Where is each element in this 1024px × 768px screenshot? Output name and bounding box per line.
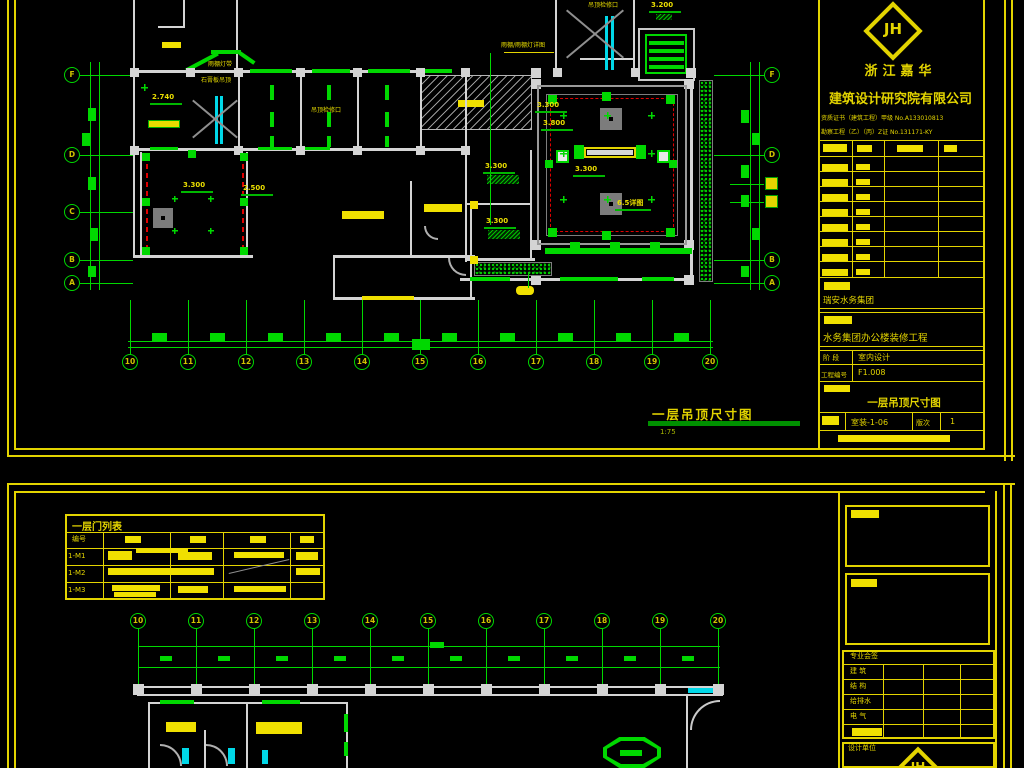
- label-block: [838, 435, 950, 442]
- grid-line: [741, 195, 749, 207]
- grid-line: [649, 49, 684, 53]
- label-block: [470, 201, 478, 209]
- grid-line: [312, 629, 313, 686]
- grid-line: [326, 333, 341, 341]
- grid-line: [714, 155, 764, 156]
- grid-line: [188, 300, 189, 355]
- axis-bubble: 12: [238, 354, 254, 370]
- door-arc: [160, 744, 182, 766]
- grid-line: [602, 629, 603, 686]
- grid-line: [430, 642, 444, 648]
- axis-bubble: 19: [652, 613, 668, 629]
- border-line: [983, 0, 985, 449]
- label-block: [296, 552, 318, 560]
- grid-line: [718, 629, 719, 686]
- annotation-label: 3.300: [537, 102, 559, 110]
- grid-line: [649, 57, 684, 61]
- grid-line: [649, 65, 684, 69]
- cross-mark: [560, 150, 567, 157]
- grid-line: [558, 333, 573, 341]
- grid-line: [385, 136, 389, 147]
- border-line: [818, 430, 983, 431]
- annotation-label: 吊顶检修口: [311, 108, 341, 115]
- label-block: [856, 254, 870, 260]
- axis-bubble: 18: [586, 354, 602, 370]
- border-line: [912, 412, 913, 430]
- grid-line: [470, 277, 510, 281]
- label-block: [822, 269, 848, 276]
- cross-mark: [560, 112, 567, 119]
- drawing-number: 室装-1-06: [851, 417, 888, 428]
- label-block: [178, 586, 208, 593]
- grid-line: [710, 300, 711, 355]
- grid-line: [428, 629, 429, 686]
- wall-segment: [597, 684, 608, 695]
- grid-line: [385, 112, 389, 127]
- border-line: [14, 0, 16, 449]
- wall-segment: [296, 146, 305, 155]
- grid-line: [80, 212, 133, 213]
- axis-square: [765, 195, 778, 208]
- grid-line: [304, 300, 305, 355]
- stage-value: 室内设计: [858, 352, 890, 363]
- wall-segment: [587, 150, 633, 155]
- border-line: [842, 709, 995, 710]
- axis-bubble: 18: [594, 613, 610, 629]
- grid-line: [560, 277, 618, 281]
- border-line: [14, 448, 985, 450]
- annotation-label: 雨棚/雨棚灯详图: [501, 43, 545, 50]
- grid-line: [674, 333, 689, 341]
- grid-line: [478, 300, 479, 355]
- wall-segment: [238, 72, 240, 150]
- cross-mark: [648, 196, 655, 203]
- grid-line: [138, 646, 720, 647]
- label-block: [234, 586, 286, 592]
- wall-segment: [410, 181, 412, 257]
- grid-line: [385, 85, 389, 100]
- annotation-label: 2.740: [152, 94, 174, 102]
- border-line: [65, 565, 325, 566]
- annotation-label: 1-M2: [68, 570, 85, 578]
- cyan-door: [220, 96, 223, 144]
- grid-line: [624, 656, 636, 661]
- label-block: [300, 536, 314, 543]
- cross-mark: [172, 196, 178, 202]
- wall-segment: [296, 68, 305, 77]
- wall-segment: [416, 68, 425, 77]
- grid-line: [616, 333, 631, 341]
- speckle-band: [474, 262, 552, 276]
- grid-line: [188, 150, 196, 158]
- label-block: [296, 568, 320, 575]
- border-line: [938, 140, 939, 277]
- grid-line: [218, 656, 230, 661]
- grid-line: [370, 629, 371, 686]
- grid-line: [500, 333, 515, 341]
- company-name-line2: 建筑设计研究院有限公司: [818, 88, 983, 107]
- annotation-label: 2.500: [243, 185, 265, 193]
- label-block: [178, 552, 212, 560]
- wall-segment: [133, 684, 144, 695]
- wall-segment: [481, 684, 492, 695]
- border-line: [818, 308, 983, 309]
- certificate-line1: 资质证书（建筑工程）甲级 No.A133010813: [821, 113, 943, 122]
- grid-line: [160, 656, 172, 661]
- wall-segment: [357, 72, 359, 150]
- wall-segment: [686, 68, 696, 78]
- border-line: [818, 186, 983, 187]
- label-block: [458, 100, 484, 107]
- company-name-line1: 浙江嘉华: [818, 60, 983, 79]
- label-block: [851, 510, 879, 518]
- label-block: [470, 256, 478, 264]
- label-block: [162, 42, 181, 48]
- border-line: [818, 277, 983, 278]
- grid-line: [508, 656, 520, 661]
- wall-segment: [191, 684, 202, 695]
- company-logo-text: JH: [872, 20, 914, 38]
- wall-segment: [133, 0, 135, 258]
- border-line: [884, 140, 885, 277]
- axis-bubble: D: [764, 147, 780, 163]
- border-line: [940, 412, 941, 430]
- axis-bubble: 17: [528, 354, 544, 370]
- wall-segment: [531, 68, 541, 78]
- axis-bubble: 10: [130, 613, 146, 629]
- axis-bubble: 13: [304, 613, 320, 629]
- grid-line: [254, 629, 255, 686]
- border-line: [818, 412, 983, 413]
- annotation-label: 3.300: [183, 182, 205, 190]
- border-line: [65, 532, 325, 533]
- axis-bubble: 17: [536, 613, 552, 629]
- door-arc: [448, 258, 466, 276]
- label-block: [856, 179, 870, 185]
- axis-bubble: 12: [246, 613, 262, 629]
- axis-bubble: D: [64, 147, 80, 163]
- axis-bubble: F: [764, 67, 780, 83]
- grid-line: [752, 228, 760, 240]
- grid-line: [152, 333, 167, 341]
- label-block: [822, 194, 848, 201]
- axis-bubble: 15: [412, 354, 428, 370]
- label-block: [822, 179, 848, 186]
- grid-line: [88, 266, 96, 277]
- project-name: 水务集团办公楼装修工程: [823, 330, 928, 344]
- border-line: [818, 231, 983, 232]
- grid-line: [90, 62, 91, 290]
- label-block: [944, 145, 957, 152]
- label-block: [342, 211, 384, 219]
- border-line: [818, 246, 983, 247]
- wall-segment: [236, 0, 238, 70]
- border-line: [818, 381, 983, 382]
- grid-line: [88, 177, 96, 190]
- grid-line: [752, 133, 760, 145]
- wall-segment: [461, 146, 470, 155]
- plan-scale: 1:75: [660, 428, 676, 436]
- cross-mark: [141, 84, 148, 91]
- label-block: [822, 164, 848, 171]
- label-block: [516, 286, 534, 295]
- wall-segment: [531, 275, 541, 285]
- grid-line: [160, 700, 194, 704]
- border-line: [818, 171, 983, 172]
- axis-bubble: 20: [710, 613, 726, 629]
- label-block: [250, 536, 266, 543]
- axis-bubble: 16: [470, 354, 486, 370]
- annotation-label: 给排水: [850, 698, 871, 706]
- wall-segment: [186, 68, 195, 77]
- wall-segment: [539, 684, 550, 695]
- wall-segment: [465, 72, 467, 262]
- axis-bubble: 16: [478, 613, 494, 629]
- wall-segment: [631, 68, 640, 77]
- grid-line: [545, 248, 692, 254]
- cross-mark: [648, 150, 655, 157]
- wall-segment: [555, 0, 557, 71]
- border-line: [7, 483, 9, 768]
- grid-line: [741, 266, 749, 277]
- wall-segment: [307, 684, 318, 695]
- grid-line: [442, 333, 457, 341]
- axis-bubble: 15: [420, 613, 436, 629]
- grid-line: [344, 742, 348, 756]
- wall-segment: [183, 0, 185, 28]
- axis-bubble: 11: [188, 613, 204, 629]
- annotation-label: 编号: [72, 536, 86, 544]
- grid-line: [90, 228, 98, 241]
- plan-title-underline: [648, 421, 800, 426]
- wall-segment: [420, 72, 422, 150]
- label-block: [852, 728, 882, 736]
- grid-line: [99, 62, 100, 290]
- wall-segment: [333, 257, 335, 299]
- border-line: [842, 724, 995, 725]
- client-name: 瑞安水务集团: [823, 294, 874, 306]
- border-line: [103, 532, 104, 600]
- wall-segment: [713, 684, 724, 695]
- border-line: [170, 532, 171, 600]
- cad-drawing-canvas: JH 浙江嘉华 建筑设计研究院有限公司 资质证书（建筑工程）甲级 No.A133…: [0, 0, 1024, 768]
- fixture-dot: [161, 216, 165, 220]
- grid-line: [574, 145, 584, 159]
- wall-segment: [130, 68, 139, 77]
- project-no-value: F1.008: [858, 368, 886, 377]
- grid-line: [392, 656, 404, 661]
- wall-segment: [246, 702, 248, 768]
- stage-label: 阶 段: [823, 353, 839, 363]
- grid-line: [142, 198, 150, 206]
- label-block: [362, 296, 414, 300]
- grid-line: [660, 629, 661, 686]
- grid-line: [270, 85, 274, 100]
- axis-bubble: 14: [354, 354, 370, 370]
- cross-mark: [560, 196, 567, 203]
- border-line: [960, 664, 961, 739]
- border-line: [852, 140, 853, 277]
- border-line: [845, 412, 846, 430]
- wall-segment: [633, 0, 635, 71]
- border-line: [14, 491, 16, 768]
- wall-segment: [423, 684, 434, 695]
- cyan-door: [611, 16, 614, 70]
- grid-line: [276, 656, 288, 661]
- grid-line: [741, 110, 749, 123]
- border-line: [7, 0, 9, 456]
- grid-line: [142, 153, 150, 161]
- border-line: [223, 532, 224, 600]
- border-line: [995, 491, 997, 768]
- border-line: [923, 664, 924, 739]
- border-line: [818, 346, 983, 347]
- light-bar: [148, 120, 180, 128]
- grid-line: [270, 136, 274, 147]
- grid-line: [682, 656, 694, 661]
- door-arc: [424, 226, 438, 240]
- grid-line: [620, 750, 642, 756]
- axis-square: [765, 177, 778, 190]
- certificate-line2: 勘察工程（乙）（丙）Z证 No.131171-KY: [821, 127, 932, 136]
- annotation-label: 专业会签: [850, 653, 878, 661]
- cross-mark: [604, 112, 611, 119]
- wall-segment: [130, 146, 139, 155]
- grid-line: [80, 260, 133, 261]
- label-block: [851, 579, 877, 587]
- label-block: [823, 144, 847, 152]
- grid-line: [238, 51, 255, 65]
- grid-line: [384, 333, 399, 341]
- grid-line: [268, 333, 283, 341]
- border-line: [65, 548, 325, 549]
- grid-line: [420, 300, 421, 355]
- grid-line: [669, 160, 677, 168]
- label-block: [108, 568, 180, 575]
- axis-bubble: 13: [296, 354, 312, 370]
- grid-line: [138, 629, 139, 686]
- grid-line: [327, 85, 331, 100]
- label-block: [857, 145, 872, 152]
- label-block: [856, 209, 870, 215]
- annotation-label: 3.300: [486, 218, 508, 226]
- grid-line: [545, 160, 553, 168]
- annotation-label: 6.5详图: [617, 200, 643, 208]
- annotation-label: 电 气: [850, 713, 866, 721]
- grid-line: [424, 69, 452, 73]
- green-hatch-block: [656, 14, 672, 20]
- grid-line: [138, 667, 720, 668]
- border-line: [818, 261, 983, 262]
- grid-line: [302, 147, 330, 150]
- cross-mark: [648, 112, 655, 119]
- cross-mark: [208, 196, 214, 202]
- border-line: [838, 491, 840, 768]
- cross-mark: [208, 228, 214, 234]
- wall-segment: [158, 26, 185, 28]
- wall-segment: [461, 68, 470, 77]
- wall-segment: [234, 68, 243, 77]
- axis-bubble: C: [64, 204, 80, 220]
- grid-line: [246, 300, 247, 355]
- label-block: [822, 239, 848, 246]
- grid-line: [594, 300, 595, 355]
- grid-line: [649, 41, 684, 45]
- label-block: [114, 592, 156, 597]
- wall-segment: [353, 68, 362, 77]
- grid-line: [130, 300, 131, 355]
- border-line: [65, 582, 325, 583]
- border-line: [1004, 0, 1006, 461]
- border-line: [818, 364, 983, 365]
- grid-line: [196, 629, 197, 686]
- titleblock-drawing-title: 一层吊顶尺寸图: [840, 395, 968, 410]
- grid-line: [312, 69, 350, 73]
- border-line: [7, 483, 1015, 485]
- axis-bubble: A: [64, 275, 80, 291]
- label-block: [178, 568, 214, 575]
- label-block: [856, 224, 870, 230]
- annotation-label: 结 构: [850, 683, 866, 691]
- label-block: [256, 722, 302, 734]
- annotation-label: 石膏板吊顶: [201, 78, 231, 85]
- wall-segment: [553, 68, 562, 77]
- label-block: [822, 224, 848, 231]
- cyan-door: [228, 748, 235, 764]
- grid-line: [412, 339, 430, 350]
- border-line: [1010, 483, 1012, 768]
- wall-segment: [346, 702, 348, 768]
- border-line: [290, 532, 291, 600]
- grid-line: [666, 228, 675, 237]
- grid-line: [258, 147, 292, 150]
- grid-line: [270, 112, 274, 127]
- grid-line: [150, 147, 178, 150]
- grid-line: [250, 69, 292, 73]
- border-line: [818, 216, 983, 217]
- label-block: [166, 722, 196, 732]
- wall-segment: [470, 205, 472, 299]
- grid-line: [142, 247, 150, 255]
- grid-line: [362, 300, 363, 355]
- border-line: [818, 140, 983, 141]
- grid-line: [750, 62, 751, 290]
- grid-line: [759, 62, 760, 290]
- annotation-label: 设计单位: [848, 745, 876, 753]
- cyan-door: [262, 750, 268, 764]
- grid-line: [652, 300, 653, 355]
- annotation-label: 1-M3: [68, 587, 85, 595]
- revision-label: 版次: [916, 418, 930, 428]
- speckle-band: [699, 80, 713, 282]
- grid-line: [544, 629, 545, 686]
- label-block: [822, 416, 839, 425]
- door-arc: [690, 700, 720, 730]
- axis-bubble: 20: [702, 354, 718, 370]
- label-block: [822, 254, 848, 261]
- annotation-label: 3.300: [575, 166, 597, 174]
- label-block: [824, 282, 850, 290]
- label-block: [108, 551, 132, 560]
- annotation-label: 3.300: [485, 163, 507, 171]
- green-hatch-block: [488, 230, 520, 239]
- grid-line: [82, 133, 90, 146]
- project-no-label: 工程编号: [821, 369, 847, 379]
- axis-bubble: A: [764, 275, 780, 291]
- grid-line: [602, 231, 611, 240]
- annotation-label: 雨棚灯带: [208, 62, 232, 69]
- wall-segment: [249, 684, 260, 695]
